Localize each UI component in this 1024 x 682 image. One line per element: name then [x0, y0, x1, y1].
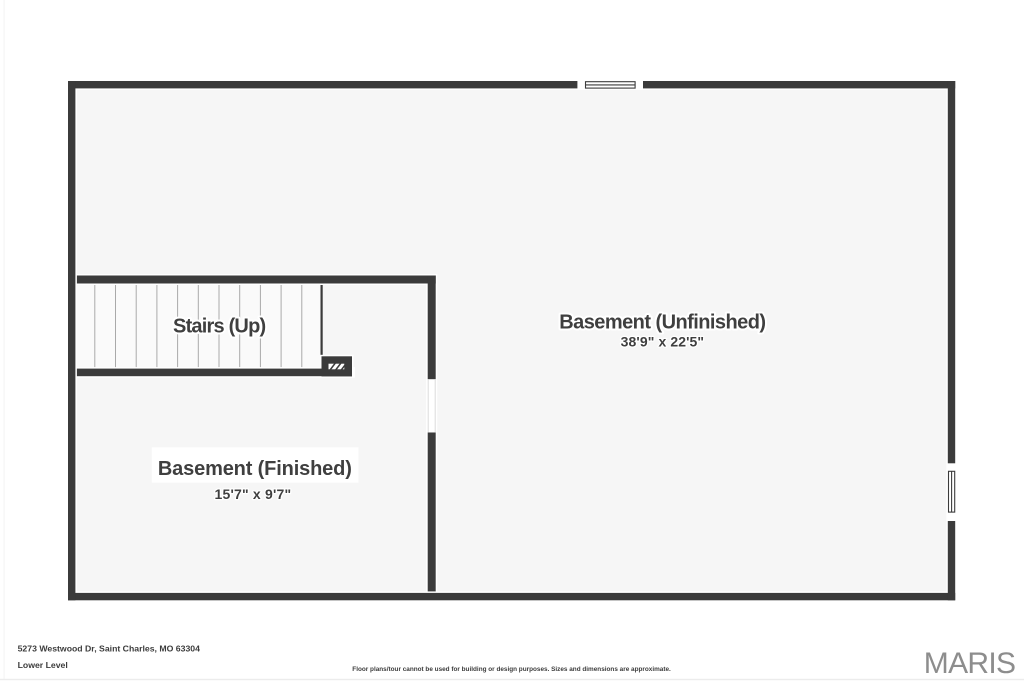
svg-text:15'7" x 9'7": 15'7" x 9'7" [214, 486, 291, 502]
svg-text:MARIS: MARIS [924, 647, 1016, 680]
svg-text:5273 Westwood Dr, Saint Charle: 5273 Westwood Dr, Saint Charles, MO 6330… [18, 643, 201, 653]
svg-text:Floor plans/tour cannot be use: Floor plans/tour cannot be used for buil… [352, 666, 671, 673]
svg-text:Stairs (Up): Stairs (Up) [173, 316, 265, 338]
svg-text:Basement (Unfinished): Basement (Unfinished) [559, 311, 765, 333]
svg-text:Lower Level: Lower Level [18, 660, 68, 670]
svg-text:Basement (Finished): Basement (Finished) [158, 458, 352, 480]
svg-text:38'9" x 22'5": 38'9" x 22'5" [621, 334, 705, 350]
